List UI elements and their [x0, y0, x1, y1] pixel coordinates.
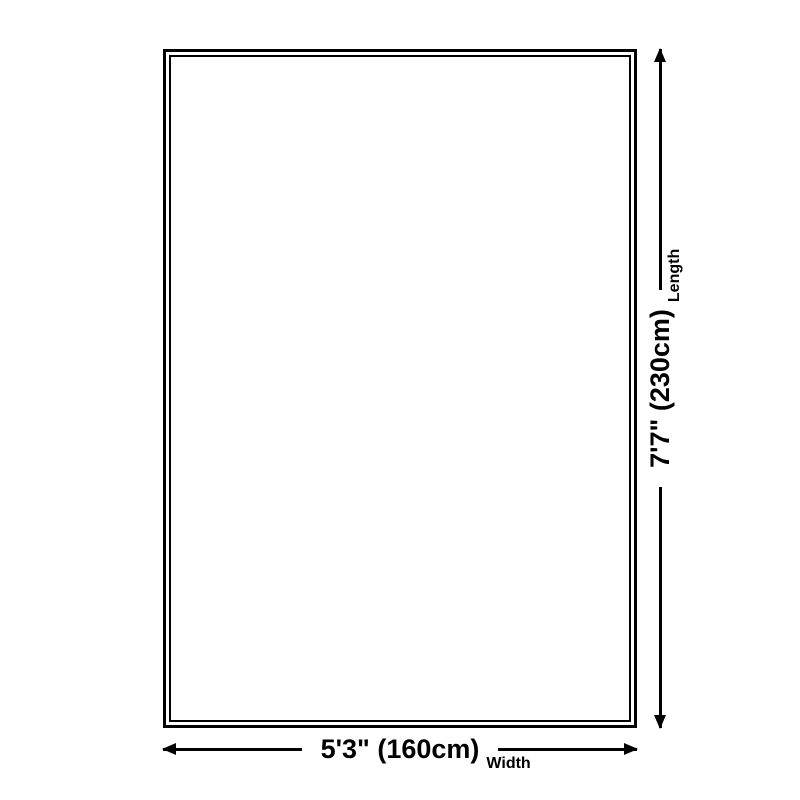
length-value: 7'7" (230cm) [647, 309, 674, 468]
length-dimension: 7'7" (230cm) Length [632, 49, 688, 728]
length-label: Length [667, 249, 683, 302]
width-dimension: 5'3" (160cm) Width [163, 721, 637, 777]
length-dimension-line-top: Length [659, 49, 662, 290]
width-value: 5'3" (160cm) [321, 736, 480, 763]
rug-outline-inner [169, 55, 631, 722]
arrowhead-up-icon [654, 48, 666, 62]
width-dimension-line-left [163, 748, 302, 751]
rug-outline-outer [163, 49, 637, 728]
arrowhead-right-icon [624, 743, 638, 755]
arrowhead-down-icon [654, 715, 666, 729]
rug-size-diagram: 5'3" (160cm) Width 7'7" (230cm) Length [0, 0, 800, 800]
arrowhead-left-icon [162, 743, 176, 755]
width-dimension-line-right: Width [498, 748, 637, 751]
length-dimension-line-bottom [659, 487, 662, 728]
width-label: Width [486, 756, 530, 772]
